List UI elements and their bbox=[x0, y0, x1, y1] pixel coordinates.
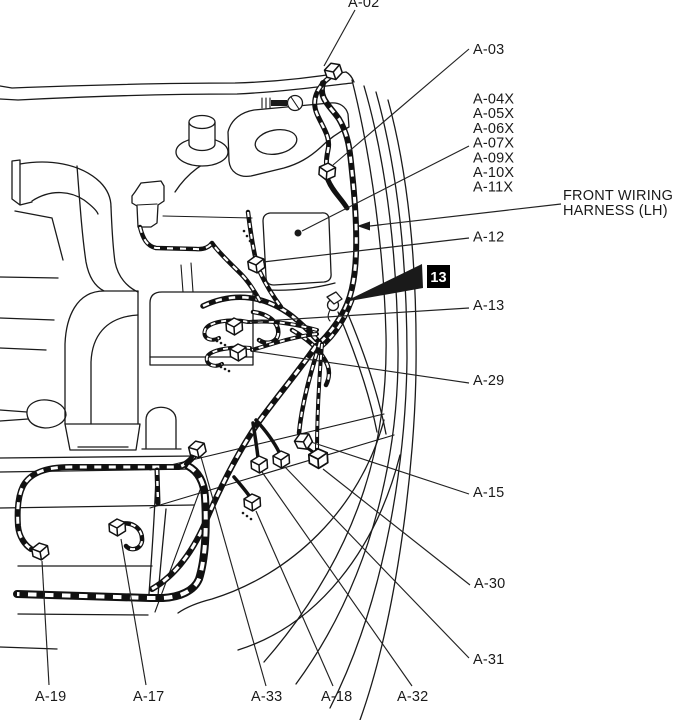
connector-a32 bbox=[251, 456, 268, 473]
label-a07x: A-07X bbox=[473, 136, 514, 152]
label-a29: A-29 bbox=[473, 373, 504, 389]
connector-a18 bbox=[244, 494, 261, 511]
connector-a17 bbox=[109, 519, 126, 536]
air-duct-elbow bbox=[65, 291, 140, 450]
relay-box-dot bbox=[295, 230, 302, 237]
label-a18: A-18 bbox=[321, 689, 352, 705]
label-front-harness-line1: FRONT WIRING bbox=[563, 188, 673, 204]
wiring-diagram-page: 13 A-02 A-03 A-04X A-05X A-06X A-07X A-0… bbox=[0, 0, 684, 720]
body-arcs bbox=[178, 80, 416, 720]
hose-arch bbox=[142, 407, 181, 449]
label-a05x: A-05X bbox=[473, 106, 514, 122]
label-a33: A-33 bbox=[251, 689, 282, 705]
relay-box bbox=[263, 213, 335, 290]
label-a03: A-03 bbox=[473, 42, 504, 58]
leader-a19 bbox=[42, 561, 49, 685]
label-a31: A-31 bbox=[473, 652, 504, 668]
shield-edge bbox=[150, 435, 394, 508]
leader-a17 bbox=[121, 539, 146, 685]
wiring-diagram-canvas: 13 A-02 A-03 A-04X A-05X A-06X A-07X A-0… bbox=[0, 0, 684, 720]
connector-a12 bbox=[247, 255, 265, 273]
fender-corner bbox=[346, 72, 354, 82]
label-a06x: A-06X bbox=[473, 121, 514, 137]
label-a12: A-12 bbox=[473, 230, 504, 246]
panel-edge bbox=[163, 216, 252, 218]
connector-a31 bbox=[273, 451, 290, 468]
cap-cylinders bbox=[176, 116, 228, 167]
label-a13: A-13 bbox=[473, 298, 504, 314]
label-a04x: A-04X bbox=[473, 92, 514, 108]
radiator-support-lines bbox=[0, 456, 195, 649]
leader-a03 bbox=[333, 49, 469, 165]
label-a02: A-02 bbox=[348, 0, 379, 11]
label-a19: A-19 bbox=[35, 689, 66, 705]
fender-line-upper bbox=[0, 72, 346, 88]
label-a32: A-32 bbox=[397, 689, 428, 705]
label-a11x: A-11X bbox=[473, 180, 513, 196]
panel-posts bbox=[181, 263, 193, 292]
label-a17: A-17 bbox=[133, 689, 164, 705]
connector-a19 bbox=[31, 542, 49, 561]
intake-hoses bbox=[12, 160, 138, 292]
leader-a29 bbox=[251, 351, 469, 383]
label-a15: A-15 bbox=[473, 485, 504, 501]
leader-a33 bbox=[201, 457, 266, 686]
label-front-harness-line2: HARNESS (LH) bbox=[563, 203, 668, 219]
engine-left-details bbox=[0, 277, 66, 428]
label-a09x: A-09X bbox=[473, 150, 514, 166]
leader-a32 bbox=[262, 472, 412, 686]
clip-badge-number: 13 bbox=[430, 270, 446, 286]
label-a30: A-30 bbox=[474, 576, 505, 592]
leader-a02 bbox=[324, 10, 355, 66]
label-a10x: A-10X bbox=[473, 165, 514, 181]
